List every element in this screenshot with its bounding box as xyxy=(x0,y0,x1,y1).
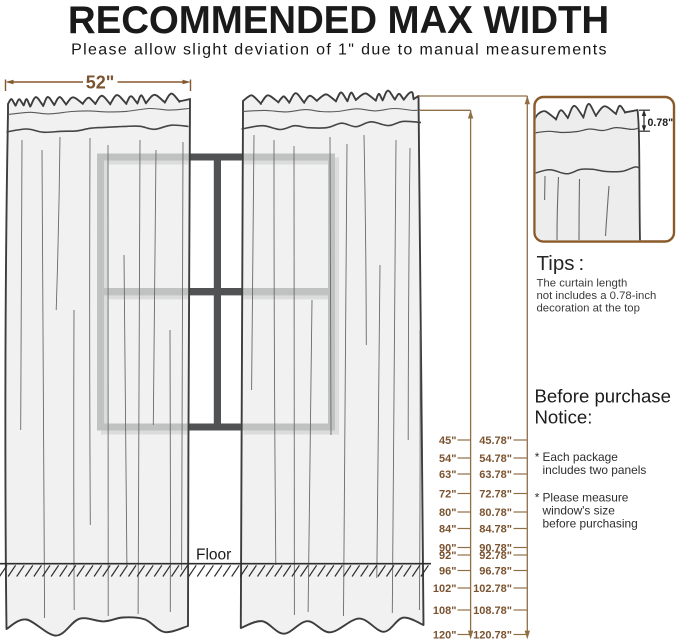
svg-text:108.78": 108.78" xyxy=(473,605,512,617)
svg-text:not includes a 0.78-inch: not includes a 0.78-inch xyxy=(537,290,657,302)
svg-text:The curtain length: The curtain length xyxy=(537,278,628,290)
svg-text:54": 54" xyxy=(439,453,456,465)
svg-text:Notice:: Notice: xyxy=(535,407,593,428)
svg-text:96": 96" xyxy=(439,566,456,578)
svg-text:92": 92" xyxy=(439,550,456,562)
svg-text:120": 120" xyxy=(433,630,457,642)
svg-text:Tips:: Tips: xyxy=(537,252,585,275)
svg-text:84": 84" xyxy=(439,524,456,536)
svg-text:window's size: window's size xyxy=(542,504,616,518)
svg-text:decoration at the top: decoration at the top xyxy=(537,302,640,314)
svg-text:before purchasing: before purchasing xyxy=(543,517,638,531)
svg-text:72": 72" xyxy=(439,489,456,501)
svg-text:102": 102" xyxy=(433,583,457,595)
svg-text:96.78": 96.78" xyxy=(479,566,512,578)
svg-text:120.78": 120.78" xyxy=(473,630,512,642)
svg-text:102.78": 102.78" xyxy=(473,583,512,595)
svg-text:84.78": 84.78" xyxy=(479,524,512,536)
svg-text:45": 45" xyxy=(439,435,456,447)
svg-text:63.78": 63.78" xyxy=(479,469,512,481)
svg-text:45.78": 45.78" xyxy=(479,435,512,447)
svg-text:63": 63" xyxy=(439,469,456,481)
svg-text:108": 108" xyxy=(433,605,457,617)
svg-text:Floor: Floor xyxy=(196,547,231,564)
svg-text:92.78": 92.78" xyxy=(479,550,512,562)
svg-text:Before purchase: Before purchase xyxy=(535,386,671,407)
svg-text:* Please measure: * Please measure xyxy=(535,491,629,505)
svg-text:RECOMMENDED MAX WIDTH: RECOMMENDED MAX WIDTH xyxy=(68,0,609,42)
svg-text:54.78": 54.78" xyxy=(479,453,512,465)
svg-text:Please allow slight deviation: Please allow slight deviation of 1" due … xyxy=(71,42,608,59)
svg-text:52": 52" xyxy=(86,73,115,93)
svg-text:* Each package: * Each package xyxy=(535,450,618,464)
svg-text:0.78": 0.78" xyxy=(648,117,674,129)
svg-text:80": 80" xyxy=(439,507,456,519)
svg-text:80.78": 80.78" xyxy=(479,507,512,519)
svg-text:includes two panels: includes two panels xyxy=(543,463,647,477)
svg-text:72.78": 72.78" xyxy=(479,489,512,501)
